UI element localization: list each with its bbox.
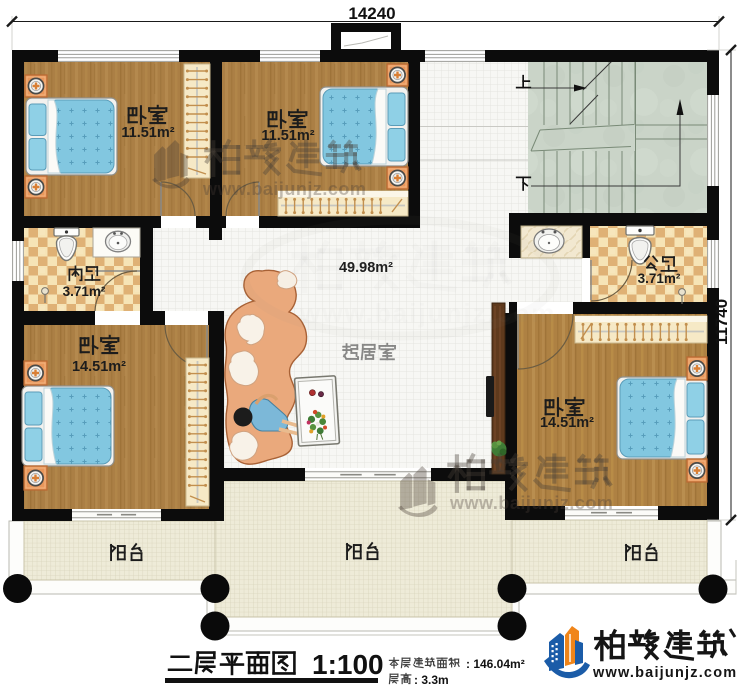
svg-text:11740: 11740 [712,299,731,345]
svg-text:www.baijunjz.com: www.baijunjz.com [592,665,737,681]
svg-text:1:100: 1:100 [312,649,384,680]
svg-text:: 146.04m²: : 146.04m² [466,657,525,671]
svg-text:www.baijunjz.com: www.baijunjz.com [449,493,613,513]
svg-text:: 3.3m: : 3.3m [414,673,449,687]
svg-text:14.51m²: 14.51m² [540,415,594,431]
svg-text:14240: 14240 [348,4,395,23]
svg-text:14.51m²: 14.51m² [72,359,126,375]
svg-text:3.71m²: 3.71m² [63,284,106,299]
svg-text:3.71m²: 3.71m² [638,271,681,286]
svg-text:www.baijunjz.com: www.baijunjz.com [202,179,366,199]
svg-text:www.baijunjz.com: www.baijunjz.com [299,298,556,328]
svg-text:11.51m²: 11.51m² [121,125,174,141]
